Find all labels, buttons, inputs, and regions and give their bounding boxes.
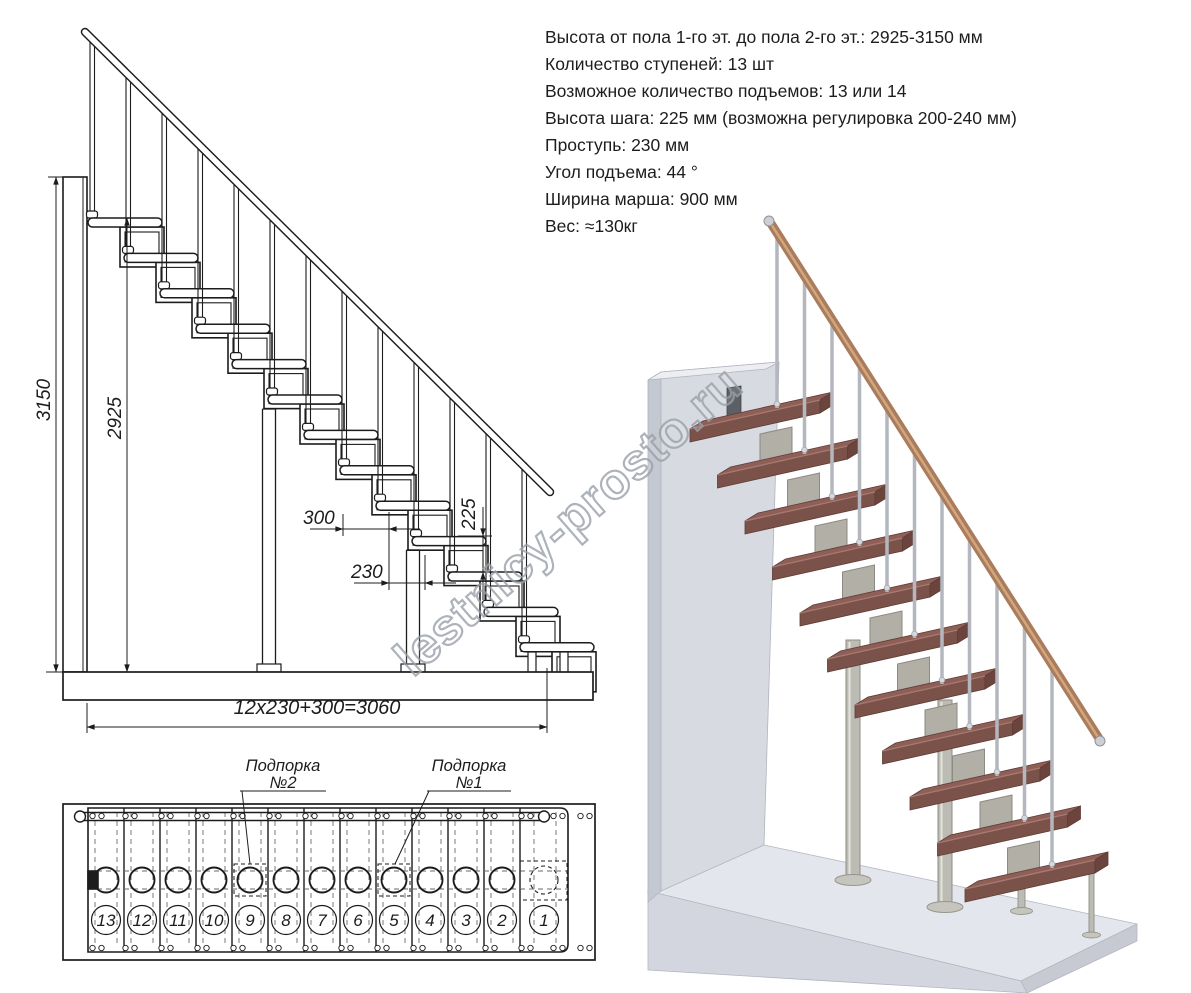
dim-230: 230 <box>350 562 383 583</box>
elevation-drawing: 3150 2925 300 230 225 12x230+300=3060 <box>34 32 596 733</box>
dim-3150: 3150 <box>34 378 55 421</box>
plan-module-circles <box>94 866 559 894</box>
spec-line-height-range: Высота от пола 1-го эт. до пола 2-го эт.… <box>545 24 1090 51</box>
dim-total-length: 12x230+300=3060 <box>234 697 401 719</box>
dim-2925: 2925 <box>105 396 126 440</box>
step-number: 5 <box>389 911 399 930</box>
plan-view: 13 12 11 10 9 8 7 6 5 4 3 2 1 Подпорка №… <box>63 757 595 960</box>
step-number: 9 <box>245 911 255 930</box>
support-1-label: Подпорка <box>432 757 507 775</box>
step-number: 12 <box>133 911 152 930</box>
base-platform <box>63 672 593 700</box>
support-2-label: Подпорка <box>246 757 321 775</box>
handrail-end-cap <box>1095 736 1105 746</box>
elevation-support-2 <box>257 409 281 672</box>
step-number: 2 <box>496 911 507 930</box>
spec-line-width: Ширина марша: 900 мм <box>545 186 1090 213</box>
step-number: 8 <box>281 911 291 930</box>
support-column-2 <box>835 640 871 886</box>
spec-text-block: Высота от пола 1-го эт. до пола 2-го эт.… <box>545 24 1090 240</box>
spec-line-rise-count: Возможное количество подъемов: 13 или 14 <box>545 78 1090 105</box>
step-number: 6 <box>353 911 363 930</box>
step-number: 1 <box>539 911 548 930</box>
spec-line-angle: Угол подъема: 44 ° <box>545 159 1090 186</box>
spec-line-step-height: Высота шага: 225 мм (возможна регулировк… <box>545 105 1090 132</box>
step-number: 3 <box>461 911 471 930</box>
spec-line-tread: Проступь: 230 мм <box>545 132 1090 159</box>
plan-dividers <box>124 808 520 952</box>
dim-300: 300 <box>303 508 335 529</box>
spec-line-weight: Вес: ≈130кг <box>545 213 1090 240</box>
step-number: 13 <box>97 911 116 930</box>
step-number: 11 <box>169 911 187 930</box>
step-number: 4 <box>425 911 434 930</box>
support-1-number: №1 <box>455 774 482 792</box>
dim-225: 225 <box>459 498 480 531</box>
support-2-number: №2 <box>269 774 296 792</box>
step-number: 10 <box>205 911 224 930</box>
render-3d <box>648 216 1137 993</box>
step-number: 7 <box>317 911 327 930</box>
spec-line-step-count: Количество ступеней: 13 шт <box>545 51 1090 78</box>
staircase-spec-sheet: 3150 2925 300 230 225 12x230+300=3060 <box>0 0 1191 993</box>
